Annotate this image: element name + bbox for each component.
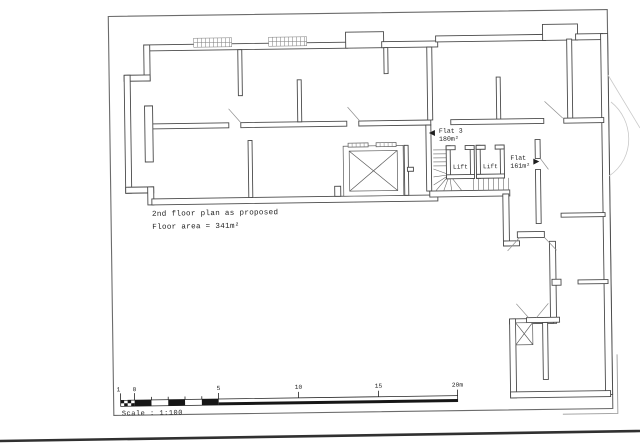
flat3-area-label: 180m² xyxy=(439,136,459,143)
service-shaft xyxy=(516,323,533,345)
sheet-group: Flat 3 180m² Lift Lift Flat 161m² 2nd fl… xyxy=(108,9,618,420)
scale-tick-15: 15 xyxy=(375,383,383,390)
flat3-name-label: Flat 3 xyxy=(439,128,463,135)
floor-area-note: Floor area = 341m² xyxy=(152,222,240,232)
rooflight-void xyxy=(343,142,404,196)
scale-tick-10: 10 xyxy=(295,384,303,391)
lift-1-shaft xyxy=(446,145,474,178)
scale-caption: Scale : 1:100 xyxy=(122,409,183,418)
door-swings xyxy=(229,101,566,322)
flat-right-name-label: Flat xyxy=(510,155,526,162)
arc-artifact xyxy=(609,102,629,176)
plan-title: 2nd floor plan as proposed xyxy=(152,209,278,219)
lift-2-shaft xyxy=(476,145,504,178)
scale-tick-0: 0 xyxy=(133,386,137,393)
flat-right-arrow-icon xyxy=(533,158,539,164)
floor-plan-svg: Flat 3 180m² Lift Lift Flat 161m² 2nd fl… xyxy=(0,0,640,447)
scale-tick-1: 1 xyxy=(117,386,121,393)
lift-1-label: Lift xyxy=(453,163,468,170)
lift-2-label: Lift xyxy=(483,163,498,170)
scanned-drawing-sheet: Flat 3 180m² Lift Lift Flat 161m² 2nd fl… xyxy=(0,0,640,447)
scale-tick-5: 5 xyxy=(217,385,221,392)
flat-right-area-label: 161m² xyxy=(510,163,530,170)
scale-tick-20m: 20m xyxy=(452,382,464,389)
scan-edge xyxy=(0,431,640,441)
diagonal-artifact xyxy=(608,75,640,128)
